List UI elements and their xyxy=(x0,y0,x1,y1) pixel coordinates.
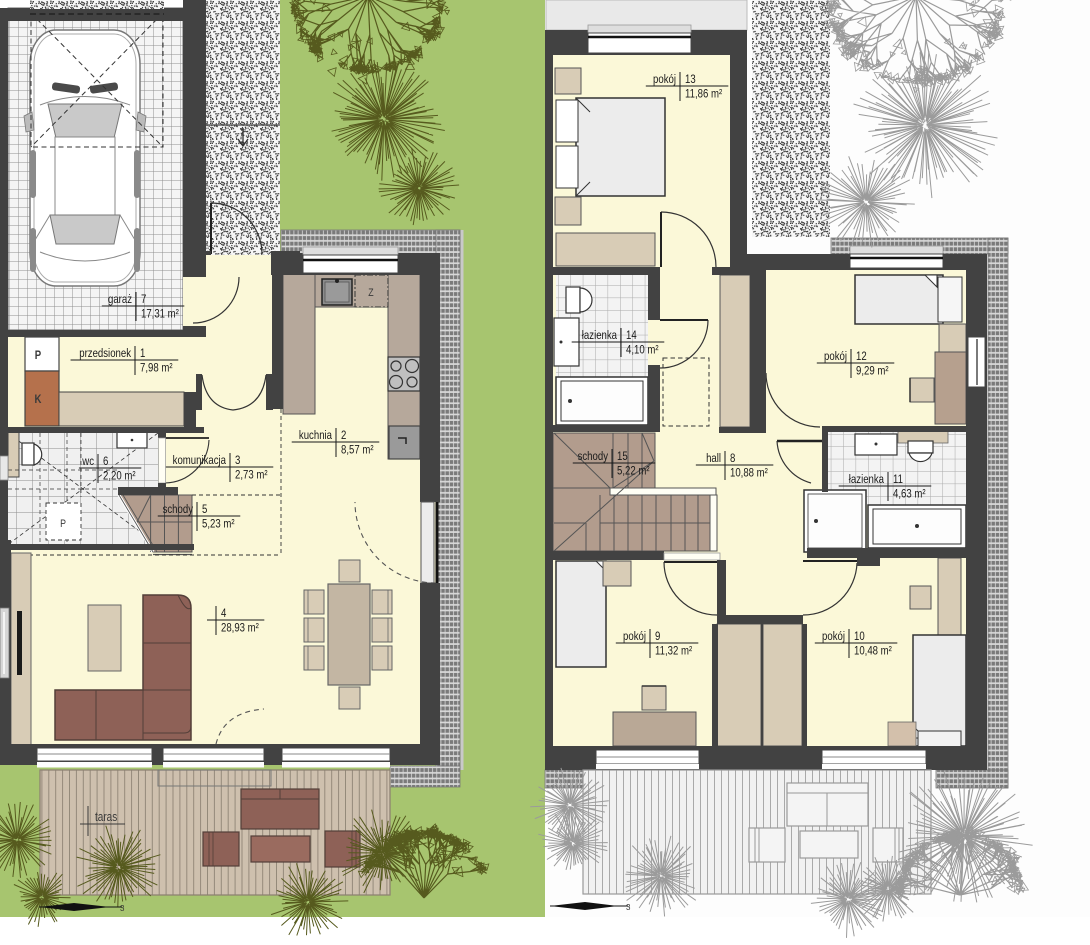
svg-text:1: 1 xyxy=(140,347,145,360)
svg-text:13: 13 xyxy=(685,73,696,86)
svg-text:7: 7 xyxy=(141,293,146,306)
svg-text:10,88 m²: 10,88 m² xyxy=(730,467,768,480)
svg-text:3: 3 xyxy=(235,454,240,467)
svg-text:10,48 m²: 10,48 m² xyxy=(854,645,892,658)
svg-text:5,22 m²: 5,22 m² xyxy=(617,465,650,478)
svg-text:28,93 m²: 28,93 m² xyxy=(221,622,259,635)
svg-text:9: 9 xyxy=(655,630,660,643)
svg-text:wc: wc xyxy=(81,455,94,468)
svg-text:łazienka: łazienka xyxy=(582,329,618,342)
svg-text:6: 6 xyxy=(103,455,108,468)
svg-text:K: K xyxy=(35,393,42,406)
svg-text:schody: schody xyxy=(163,503,194,516)
svg-text:11,86 m²: 11,86 m² xyxy=(685,88,722,101)
svg-text:hall: hall xyxy=(706,452,721,465)
svg-text:5,23 m²: 5,23 m² xyxy=(202,518,235,531)
svg-text:pokój: pokój xyxy=(822,630,845,643)
svg-text:pokój: pokój xyxy=(623,630,646,643)
svg-text:łazienka: łazienka xyxy=(849,473,885,486)
svg-text:P: P xyxy=(35,349,41,362)
svg-text:pokój: pokój xyxy=(824,350,847,363)
svg-text:8,57 m²: 8,57 m² xyxy=(341,444,374,457)
svg-text:11,32 m²: 11,32 m² xyxy=(655,645,692,658)
svg-text:4: 4 xyxy=(221,607,226,620)
svg-text:kuchnia: kuchnia xyxy=(299,429,333,442)
svg-text:11: 11 xyxy=(893,473,903,486)
svg-text:2,20 m²: 2,20 m² xyxy=(103,470,136,483)
svg-text:14: 14 xyxy=(626,329,637,342)
svg-text:taras: taras xyxy=(95,811,117,824)
svg-text:pokój: pokój xyxy=(653,73,676,86)
svg-text:12: 12 xyxy=(856,350,867,363)
svg-text:3: 3 xyxy=(120,904,125,913)
svg-text:Z: Z xyxy=(368,287,373,299)
svg-text:2,73 m²: 2,73 m² xyxy=(235,469,268,482)
svg-text:schody: schody xyxy=(578,450,609,463)
svg-text:komunikacja: komunikacja xyxy=(173,454,227,467)
svg-text:P: P xyxy=(60,518,66,530)
svg-text:9,29 m²: 9,29 m² xyxy=(856,365,889,378)
svg-text:7,98 m²: 7,98 m² xyxy=(140,362,173,375)
svg-text:15: 15 xyxy=(617,450,628,463)
svg-text:przedsionek: przedsionek xyxy=(79,347,131,360)
svg-text:8: 8 xyxy=(730,452,735,465)
svg-text:5: 5 xyxy=(202,503,207,516)
svg-text:17,31 m²: 17,31 m² xyxy=(141,308,179,321)
svg-text:4,63 m²: 4,63 m² xyxy=(893,488,926,501)
svg-text:garaż: garaż xyxy=(108,293,132,306)
svg-text:10: 10 xyxy=(854,630,865,643)
svg-text:2: 2 xyxy=(341,429,346,442)
svg-text:3: 3 xyxy=(626,903,631,912)
svg-text:4,10 m²: 4,10 m² xyxy=(626,344,659,357)
